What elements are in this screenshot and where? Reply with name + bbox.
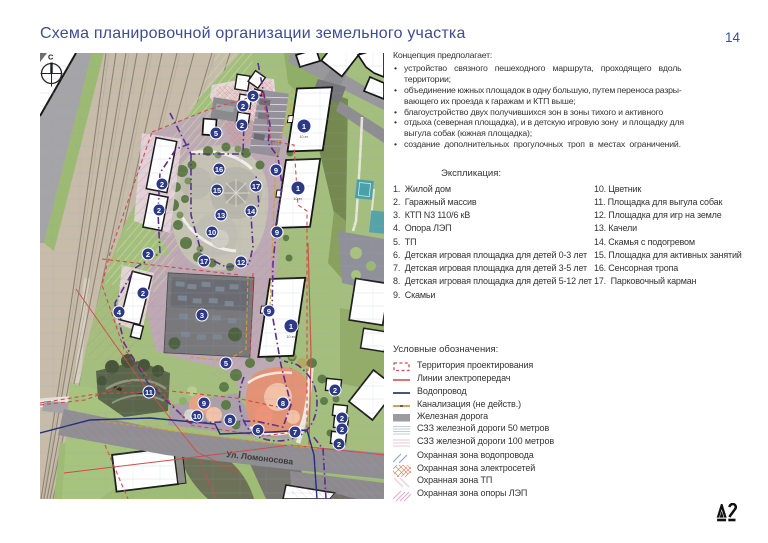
svg-text:2: 2 <box>157 206 161 215</box>
svg-text:2: 2 <box>146 250 150 259</box>
svg-text:2: 2 <box>241 102 245 111</box>
svg-text:8: 8 <box>228 416 232 425</box>
svg-text:2: 2 <box>340 425 344 434</box>
svg-text:15: 15 <box>213 186 221 195</box>
svg-text:17: 17 <box>252 182 260 191</box>
svg-text:2: 2 <box>160 180 164 189</box>
svg-text:10: 10 <box>193 412 201 421</box>
svg-text:2: 2 <box>333 386 337 395</box>
svg-text:9: 9 <box>202 399 206 408</box>
svg-text:10 эт.: 10 эт. <box>294 197 303 201</box>
svg-text:2: 2 <box>251 92 255 101</box>
svg-text:17: 17 <box>200 257 208 266</box>
svg-text:9: 9 <box>275 228 279 237</box>
svg-text:8: 8 <box>281 399 285 408</box>
svg-text:10 эт.: 10 эт. <box>287 335 296 339</box>
svg-text:1: 1 <box>289 322 293 331</box>
svg-text:2: 2 <box>340 414 344 423</box>
svg-text:1: 1 <box>302 122 306 131</box>
svg-text:9: 9 <box>267 307 271 316</box>
svg-text:3: 3 <box>200 311 204 320</box>
svg-text:2: 2 <box>240 121 244 130</box>
svg-text:5: 5 <box>214 129 218 138</box>
svg-text:16: 16 <box>215 165 223 174</box>
svg-text:9: 9 <box>274 166 278 175</box>
svg-text:1: 1 <box>296 184 300 193</box>
svg-text:11: 11 <box>145 388 153 397</box>
svg-text:2: 2 <box>337 440 341 449</box>
svg-text:5: 5 <box>224 359 228 368</box>
svg-text:10 эт.: 10 эт. <box>300 135 309 139</box>
svg-text:12: 12 <box>237 258 245 267</box>
svg-text:2: 2 <box>141 289 145 298</box>
svg-text:7: 7 <box>293 428 297 437</box>
svg-text:13: 13 <box>217 211 225 220</box>
svg-text:14: 14 <box>247 207 256 216</box>
svg-text:10: 10 <box>208 228 216 237</box>
svg-text:6: 6 <box>256 426 260 435</box>
